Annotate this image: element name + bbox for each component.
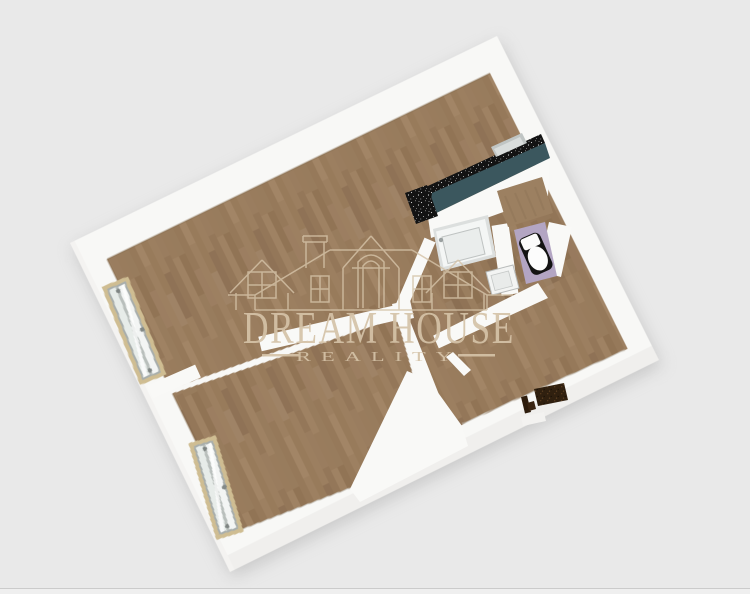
svg-text:REALITY: REALITY	[296, 349, 462, 364]
svg-text:DREAM HOUSE: DREAM HOUSE	[243, 303, 515, 353]
